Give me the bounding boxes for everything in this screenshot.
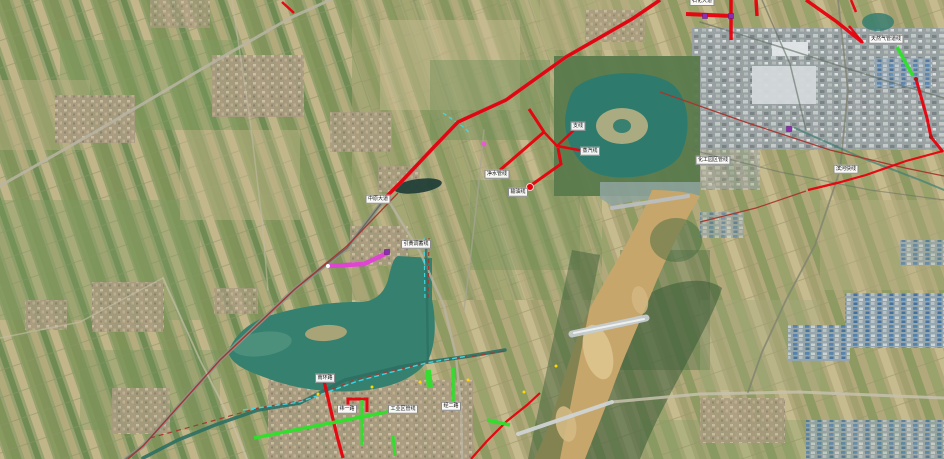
- node-dot-marker[interactable]: [371, 386, 374, 389]
- node-dot-marker[interactable]: [482, 142, 487, 147]
- feature-label[interactable]: 工业区管线: [388, 405, 418, 414]
- water-body: [613, 119, 631, 133]
- terrain-region: [900, 240, 944, 266]
- terrain-region: [180, 130, 300, 220]
- purple-node-marker[interactable]: [703, 14, 708, 19]
- terrain-region: [752, 66, 816, 104]
- terrain-region: [700, 398, 785, 443]
- node-dot-marker[interactable]: [419, 381, 422, 384]
- node-dot-marker[interactable]: [467, 379, 470, 382]
- terrain-region: [268, 380, 473, 459]
- feature-label[interactable]: 支线: [570, 122, 585, 131]
- terrain-region: [430, 60, 550, 140]
- purple-node-marker[interactable]: [385, 250, 390, 255]
- feature-label[interactable]: 石化大道: [689, 0, 714, 6]
- feature-label[interactable]: 经二路: [441, 402, 461, 411]
- feature-label[interactable]: 天然气管道线: [868, 35, 903, 44]
- terrain-region: [788, 325, 850, 361]
- satellite-map-view[interactable]: 净水管线蒸汽线输油线支线中原大道引黄调蓄线化工园区管线滨河快线天然气管道线南环路…: [0, 0, 944, 459]
- terrain-region: [692, 28, 944, 150]
- node-dot-marker[interactable]: [326, 264, 330, 268]
- red-route-line[interactable]: [686, 14, 732, 16]
- purple-node-marker[interactable]: [729, 14, 734, 19]
- feature-label[interactable]: 输油线: [508, 188, 528, 197]
- water-body: [862, 13, 894, 31]
- satellite-base-layer: [0, 0, 944, 459]
- node-dot-marker[interactable]: [555, 365, 558, 368]
- terrain-region: [214, 288, 258, 314]
- feature-label[interactable]: 南环路: [315, 374, 335, 383]
- terrain-region: [806, 420, 944, 459]
- feature-label[interactable]: 引黄调蓄线: [401, 240, 431, 249]
- feature-label[interactable]: 滨河快线: [833, 165, 858, 174]
- node-dot-marker[interactable]: [929, 135, 933, 139]
- terrain-region: [874, 58, 932, 88]
- map-canvas[interactable]: [0, 0, 944, 459]
- green-route-line[interactable]: [393, 436, 395, 456]
- feature-label[interactable]: 中原大道: [365, 195, 390, 204]
- water-body: [650, 218, 702, 262]
- terrain-region: [150, 0, 210, 28]
- node-dot-marker[interactable]: [523, 391, 526, 394]
- terrain-region: [92, 282, 164, 332]
- feature-label[interactable]: 化工园区管线: [695, 156, 730, 165]
- node-dot-marker[interactable]: [317, 393, 320, 396]
- terrain-region: [212, 55, 304, 117]
- feature-label[interactable]: 纬一路: [337, 405, 357, 414]
- feature-label[interactable]: 净水管线: [484, 170, 509, 179]
- feature-label[interactable]: 蒸汽线: [580, 147, 600, 156]
- red-route-line[interactable]: [756, 0, 757, 16]
- node-dot-marker[interactable]: [914, 77, 918, 81]
- purple-node-marker[interactable]: [787, 127, 792, 132]
- green-route-line[interactable]: [428, 370, 430, 388]
- terrain-region: [845, 293, 944, 348]
- terrain-region: [330, 112, 392, 152]
- terrain-region: [55, 95, 135, 143]
